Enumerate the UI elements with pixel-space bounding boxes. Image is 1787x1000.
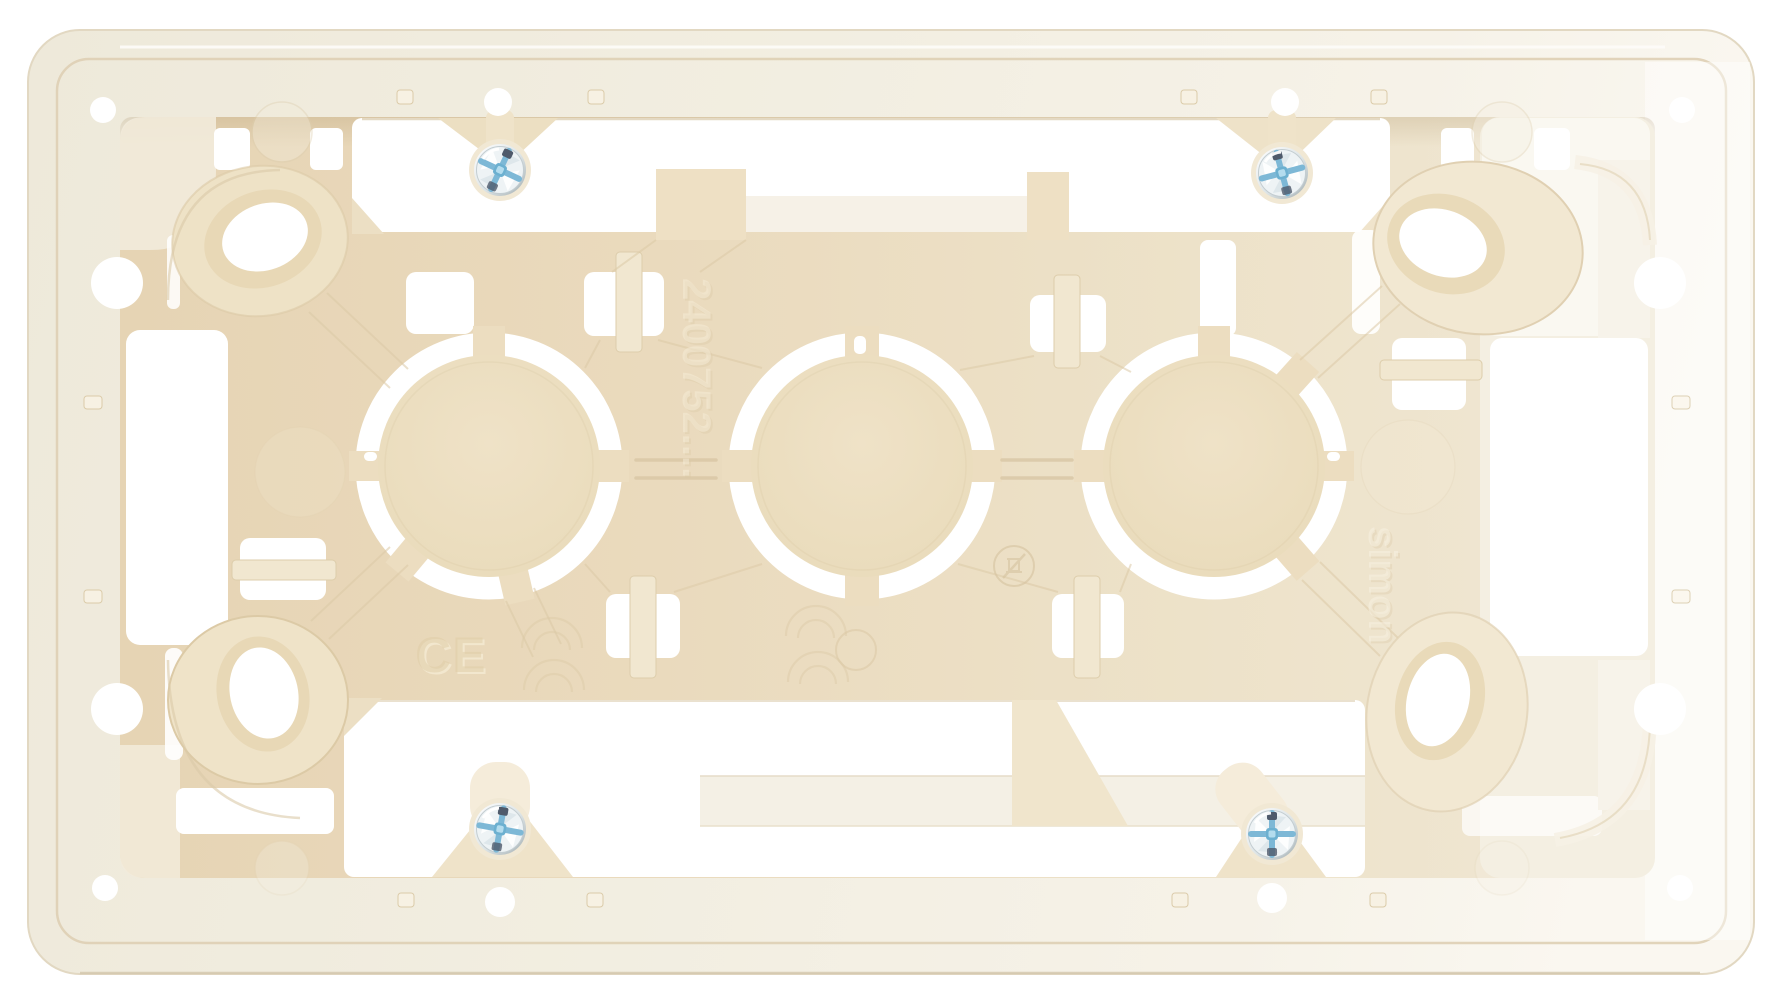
svg-text:2400752....: 2400752.... bbox=[674, 278, 718, 478]
svg-text:simon: simon bbox=[1360, 526, 1404, 644]
svg-text:CE: CE bbox=[415, 627, 486, 683]
